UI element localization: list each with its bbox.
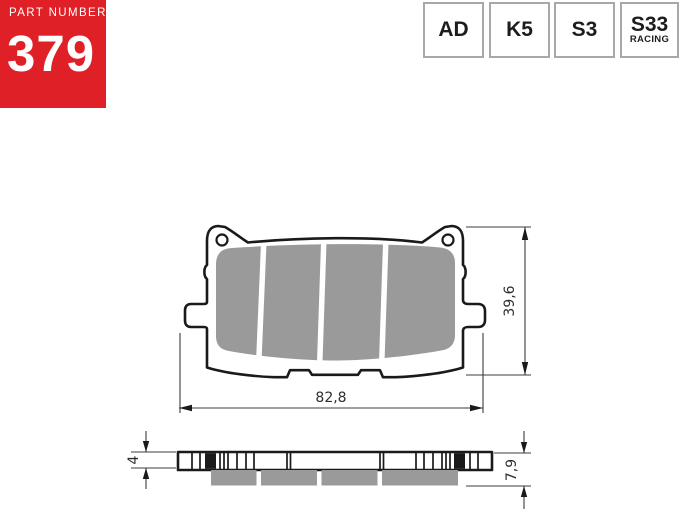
side-friction-segments (211, 470, 458, 486)
front-view-drawing (185, 226, 485, 377)
technical-drawing: 82,8 39,6 (0, 0, 680, 527)
catalog-page: PART NUMBER 379 AD K5 S3 S33 RACING (0, 0, 680, 527)
height-dimension-label: 39,6 (502, 285, 518, 316)
side-view-drawing (178, 452, 492, 486)
dimension-arrow-up (143, 468, 149, 479)
dimension-arrow-down (143, 441, 149, 452)
mounting-hole-left (217, 235, 228, 246)
plate-thickness-dimension: 4 (126, 431, 176, 489)
dimension-arrow-left (179, 405, 192, 411)
dimension-arrow-right (470, 405, 483, 411)
dimension-arrow-up (521, 486, 527, 497)
side-friction-segment (382, 470, 458, 486)
side-backplate (178, 452, 492, 470)
total-thickness-label: 7,9 (504, 459, 520, 481)
side-friction-segment (261, 470, 317, 486)
width-dimension-label: 82,8 (315, 390, 346, 406)
mounting-hole-right (443, 235, 454, 246)
side-friction-segment (322, 470, 378, 486)
dimension-arrow-up (522, 227, 528, 240)
dimension-arrow-down (522, 362, 528, 375)
dimension-arrow-down (521, 442, 527, 453)
plate-thickness-label: 4 (126, 455, 142, 464)
side-friction-segment (211, 470, 257, 486)
friction-material (216, 244, 455, 360)
height-dimension: 39,6 (466, 227, 531, 375)
